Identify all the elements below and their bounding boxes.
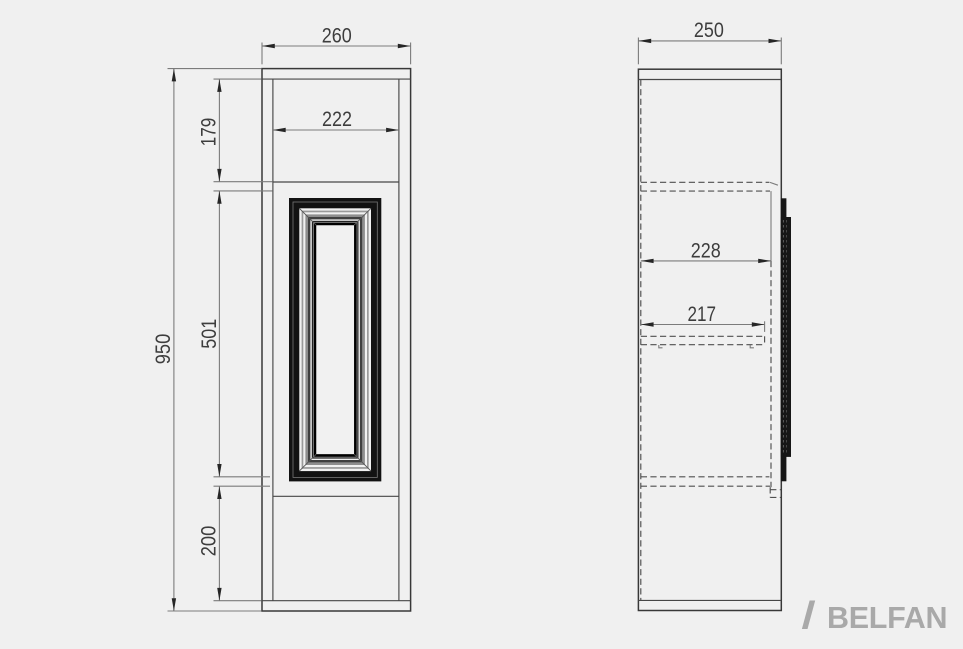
- svg-text:179: 179: [196, 118, 220, 147]
- svg-text:501: 501: [197, 319, 221, 349]
- svg-text:950: 950: [151, 334, 175, 365]
- svg-text:260: 260: [322, 24, 352, 48]
- svg-text:250: 250: [694, 18, 724, 42]
- svg-text:217: 217: [688, 302, 717, 326]
- svg-text:200: 200: [196, 526, 220, 557]
- svg-text:222: 222: [322, 107, 352, 131]
- svg-text:BELFAN: BELFAN: [827, 601, 947, 635]
- svg-text:228: 228: [691, 238, 721, 262]
